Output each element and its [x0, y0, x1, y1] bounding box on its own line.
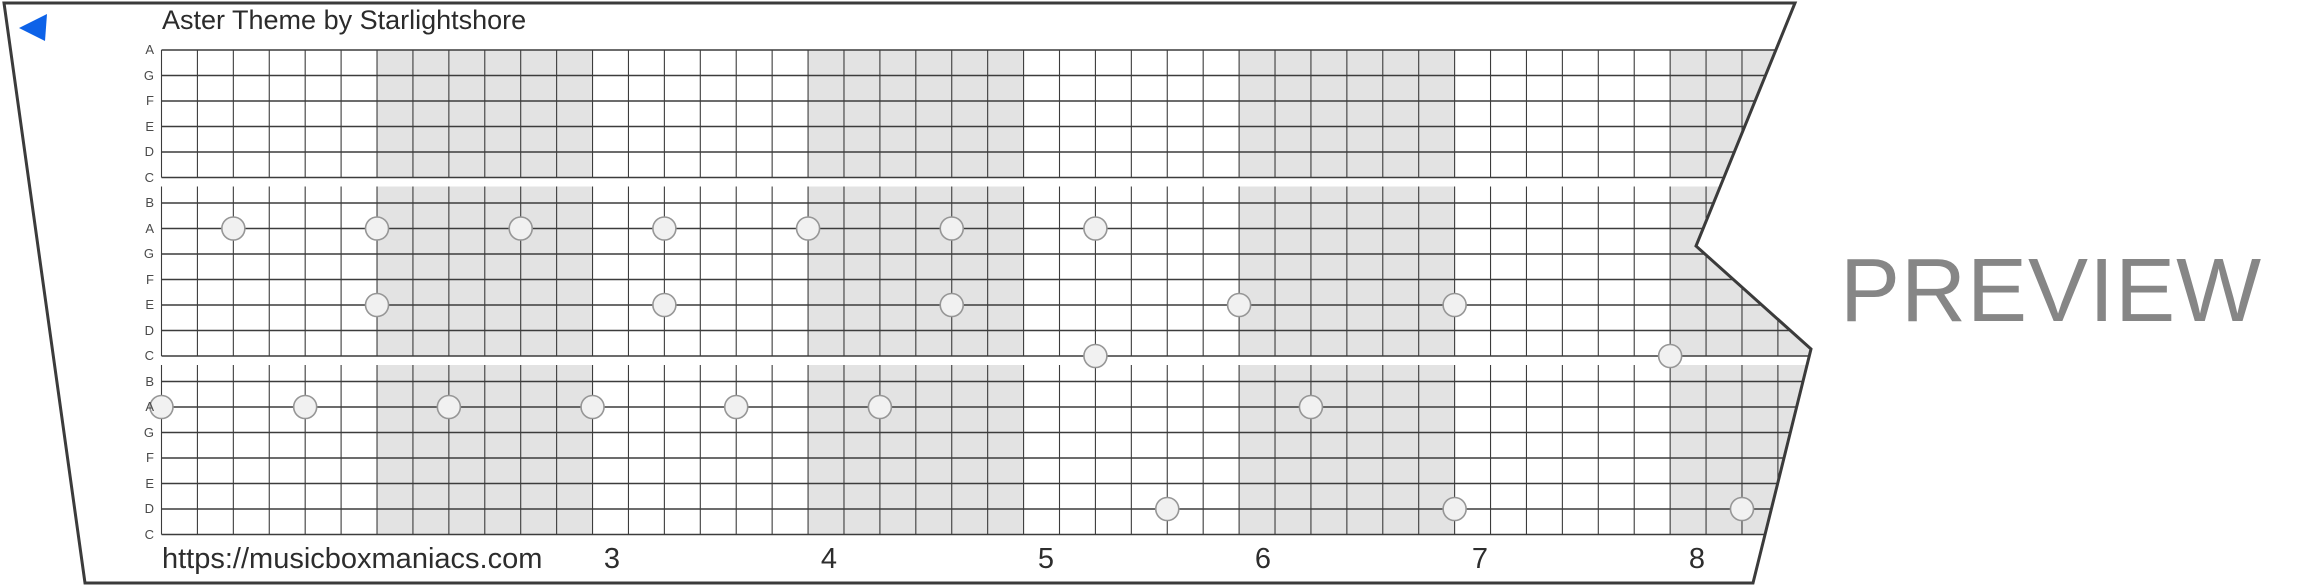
note-dot — [294, 396, 317, 419]
row-label: C — [114, 349, 154, 362]
note-dot — [1730, 498, 1753, 521]
row-label: C — [114, 171, 154, 184]
row-label: F — [114, 273, 154, 286]
row-label: G — [114, 247, 154, 260]
page-title: Aster Theme by Starlightshore — [162, 5, 526, 36]
row-label: D — [114, 145, 154, 158]
shaded-measure-band — [1670, 50, 1886, 178]
measure-number: 8 — [1677, 543, 1717, 576]
site-url: https://musicboxmaniacs.com — [162, 543, 542, 576]
row-label: E — [114, 120, 154, 133]
note-dot — [1228, 294, 1251, 317]
row-label: A — [114, 43, 154, 56]
measure-number: 6 — [1243, 543, 1283, 576]
preview-watermark: PREVIEW — [1840, 240, 2262, 343]
row-label: F — [114, 451, 154, 464]
note-dot — [725, 396, 748, 419]
note-dot — [1156, 498, 1179, 521]
row-label: C — [114, 528, 154, 541]
row-label: A — [114, 222, 154, 235]
row-label: B — [114, 375, 154, 388]
note-dot — [1084, 345, 1107, 368]
note-dot — [366, 217, 389, 240]
row-label: E — [114, 477, 154, 490]
note-dot — [366, 294, 389, 317]
measure-number: 3 — [592, 543, 632, 576]
note-dot — [509, 217, 532, 240]
note-dot — [1443, 294, 1466, 317]
note-dot — [653, 217, 676, 240]
note-dot — [797, 217, 820, 240]
measure-number: 4 — [809, 543, 849, 576]
row-label: A — [114, 400, 154, 413]
note-dot — [1443, 498, 1466, 521]
note-dot — [222, 217, 245, 240]
measure-number: 7 — [1460, 543, 1500, 576]
row-label: D — [114, 324, 154, 337]
music-strip-preview-page: Aster Theme by Starlightshore AGFEDCBAGF… — [0, 0, 2310, 585]
row-label: F — [114, 94, 154, 107]
note-dot — [1084, 217, 1107, 240]
row-label: B — [114, 196, 154, 209]
measure-number: 5 — [1026, 543, 1066, 576]
note-dot — [437, 396, 460, 419]
note-dot — [1659, 345, 1682, 368]
row-label: G — [114, 69, 154, 82]
row-label: G — [114, 426, 154, 439]
note-dot — [940, 217, 963, 240]
note-dot — [1299, 396, 1322, 419]
row-label: E — [114, 298, 154, 311]
note-dot — [940, 294, 963, 317]
note-dot — [868, 396, 891, 419]
row-label: D — [114, 502, 154, 515]
note-dot — [581, 396, 604, 419]
note-dot — [653, 294, 676, 317]
